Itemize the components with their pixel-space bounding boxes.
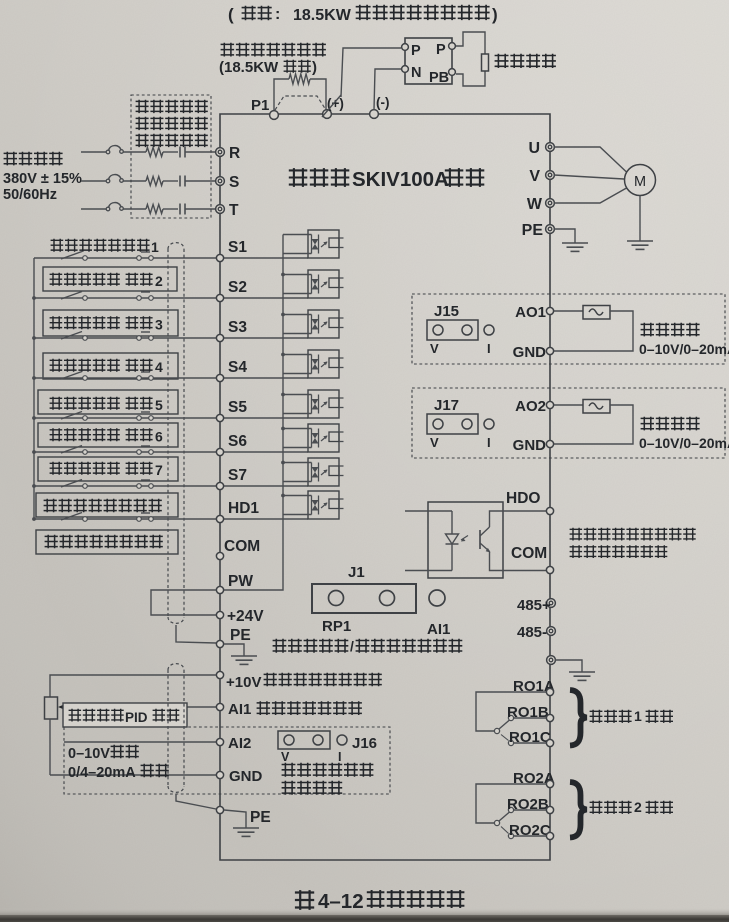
svg-text:AO1: AO1 xyxy=(515,304,546,321)
svg-text:2: 2 xyxy=(634,799,642,815)
svg-text:I: I xyxy=(487,435,491,450)
svg-text:AI2: AI2 xyxy=(228,735,251,752)
svg-text:J15: J15 xyxy=(434,303,459,320)
svg-text:S2: S2 xyxy=(228,279,247,296)
svg-text:PW: PW xyxy=(228,573,253,590)
svg-text:V: V xyxy=(430,435,439,450)
svg-text:V: V xyxy=(430,341,439,356)
svg-text:S1: S1 xyxy=(228,239,247,256)
svg-text:RO2B: RO2B xyxy=(507,796,549,813)
svg-text:+10V: +10V xyxy=(226,674,261,691)
svg-text:N: N xyxy=(411,65,421,81)
svg-text:1: 1 xyxy=(634,708,642,724)
svg-text:RP1: RP1 xyxy=(322,618,351,635)
svg-text:HDO: HDO xyxy=(506,490,540,507)
svg-text:J1: J1 xyxy=(348,564,365,581)
svg-text:P: P xyxy=(411,43,421,59)
svg-text:6: 6 xyxy=(155,429,163,445)
svg-text:4–12: 4–12 xyxy=(318,890,364,913)
svg-text:P: P xyxy=(436,42,446,58)
svg-text:380V ± 15%: 380V ± 15% xyxy=(3,171,82,187)
svg-text:M: M xyxy=(634,174,646,190)
svg-text:S7: S7 xyxy=(228,467,247,484)
svg-text:485+: 485+ xyxy=(517,597,551,614)
svg-text:PE: PE xyxy=(250,809,271,826)
svg-text:0/4–20mA: 0/4–20mA xyxy=(68,765,136,781)
svg-text:I: I xyxy=(338,750,341,764)
svg-text:50/60Hz: 50/60Hz xyxy=(3,187,57,203)
svg-text:+24V: +24V xyxy=(227,608,264,625)
svg-text:GND: GND xyxy=(513,344,547,361)
svg-text:): ) xyxy=(492,5,498,24)
svg-text:3: 3 xyxy=(155,317,163,333)
svg-text:4: 4 xyxy=(155,359,163,375)
svg-text:/: / xyxy=(350,638,354,654)
svg-text:PB: PB xyxy=(429,70,449,86)
svg-text:18.5KW: 18.5KW xyxy=(293,7,352,24)
svg-text:V: V xyxy=(281,750,290,764)
svg-text:PE: PE xyxy=(230,627,251,644)
svg-text:T: T xyxy=(229,202,239,219)
svg-text:PID: PID xyxy=(125,710,148,725)
svg-text:R: R xyxy=(229,145,240,162)
svg-text:AI1: AI1 xyxy=(228,701,251,718)
svg-text:I: I xyxy=(487,341,491,356)
svg-text:RO1B: RO1B xyxy=(507,704,549,721)
svg-text:485-: 485- xyxy=(517,624,547,641)
svg-text:(: ( xyxy=(228,5,234,24)
svg-text:SKIV100A: SKIV100A xyxy=(352,168,449,191)
svg-text:J16: J16 xyxy=(352,735,377,752)
svg-text:0–10V/0–20mA: 0–10V/0–20mA xyxy=(639,435,729,451)
svg-text:GND: GND xyxy=(513,437,547,454)
svg-text:COM: COM xyxy=(224,538,260,555)
svg-text:HD1: HD1 xyxy=(228,500,259,517)
svg-text:S3: S3 xyxy=(228,319,247,336)
svg-text:RO2C: RO2C xyxy=(509,822,551,839)
svg-text:2: 2 xyxy=(155,273,163,289)
svg-text::: : xyxy=(275,6,280,23)
svg-text:S: S xyxy=(229,174,239,191)
svg-text:PE: PE xyxy=(522,222,544,239)
svg-text:COM: COM xyxy=(511,545,547,562)
svg-text:0–10V: 0–10V xyxy=(68,746,110,762)
svg-text:7: 7 xyxy=(155,462,163,478)
svg-text:U: U xyxy=(528,140,540,157)
svg-text:AI1: AI1 xyxy=(427,621,450,638)
svg-text:AO2: AO2 xyxy=(515,398,546,415)
svg-text:(18.5KW: (18.5KW xyxy=(219,59,279,76)
svg-text:5: 5 xyxy=(155,397,163,413)
svg-text:): ) xyxy=(312,59,317,76)
svg-text:1: 1 xyxy=(151,239,159,255)
svg-text:(-): (-) xyxy=(376,95,390,110)
svg-text:S4: S4 xyxy=(228,359,247,376)
svg-text:GND: GND xyxy=(229,768,263,785)
svg-text:RO1C: RO1C xyxy=(509,729,551,746)
svg-text:J17: J17 xyxy=(434,397,459,414)
svg-text:P1: P1 xyxy=(251,97,269,114)
svg-text:S6: S6 xyxy=(228,433,247,450)
svg-text:0–10V/0–20mA: 0–10V/0–20mA xyxy=(639,341,729,357)
svg-text:W: W xyxy=(527,196,543,213)
svg-text:S5: S5 xyxy=(228,399,247,416)
svg-text:V: V xyxy=(529,168,540,185)
